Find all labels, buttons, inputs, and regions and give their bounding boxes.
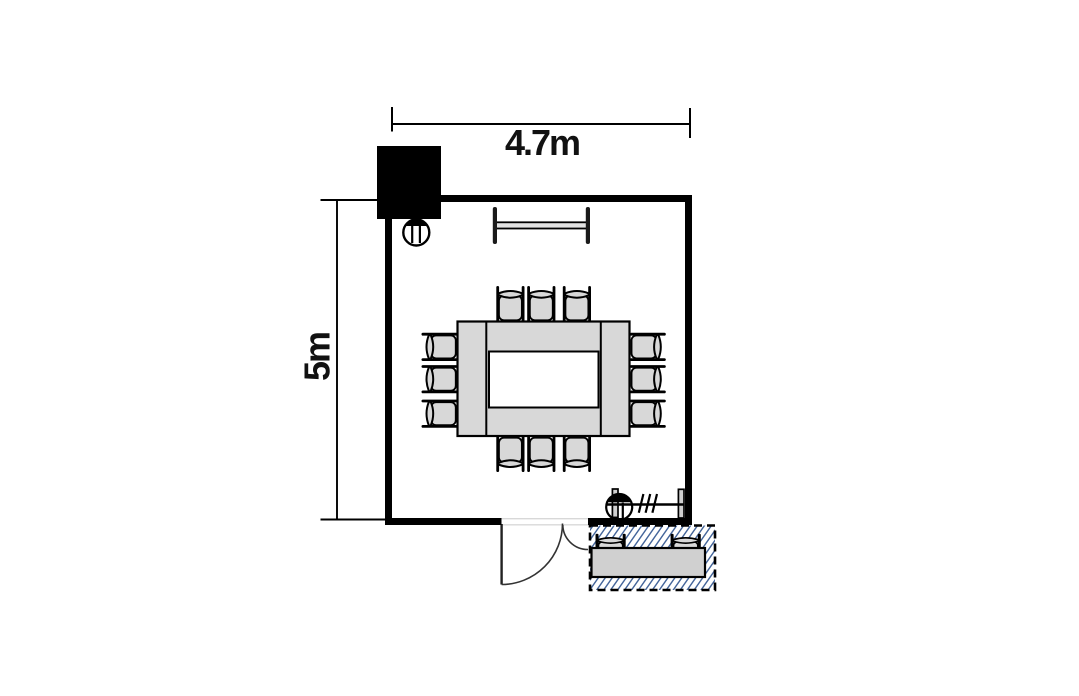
svg-text:5m: 5m <box>297 333 338 381</box>
svg-text:4.7m: 4.7m <box>505 122 579 163</box>
